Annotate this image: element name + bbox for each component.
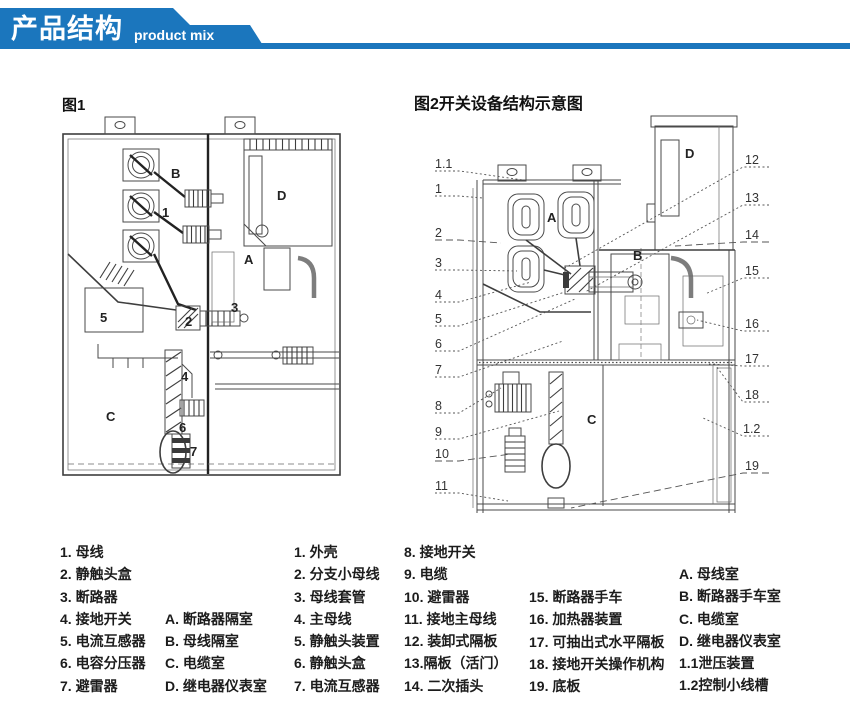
fig2-callout-14: 14 bbox=[745, 228, 759, 242]
legend-item: 4. 主母线 bbox=[294, 608, 380, 630]
legend-item: 15. 断路器手车 bbox=[529, 586, 664, 608]
fig2-callout-12: 12 bbox=[745, 153, 759, 167]
fig2-callout-10: 10 bbox=[435, 447, 449, 461]
fig2-callout-15: 15 bbox=[745, 264, 759, 278]
fig1-wall-bushings bbox=[183, 190, 223, 243]
legend-column-rooms: A. 母线室 B. 断路器手车室 C. 电缆室 D. 继电器仪表室 1.1泄压装… bbox=[679, 563, 781, 697]
legend-item-label: D. 继电器仪表室 bbox=[679, 630, 781, 652]
fig2-callout-19: 19 bbox=[745, 459, 759, 473]
legend-item: 7. 电流互感器 bbox=[294, 675, 380, 697]
legend-item: 1. 母线 bbox=[60, 541, 267, 563]
legend-item: D. 继电器仪表室 bbox=[679, 630, 781, 652]
legend-item: 1.1泄压装置 bbox=[679, 652, 781, 674]
legend-item-label: 6. 电容分压器 bbox=[60, 652, 165, 674]
legend-item: 3. 断路器 bbox=[60, 586, 267, 608]
legend-item: 1.2控制小线槽 bbox=[679, 674, 781, 696]
fig2-label-B: B bbox=[633, 248, 642, 263]
legend-item-label: C. 电缆室 bbox=[679, 608, 739, 630]
legend-item: 11. 接地主母线 bbox=[404, 608, 507, 630]
fig2-cabinet-outline bbox=[473, 165, 735, 513]
figure2-drawing: 1.1 1 2 3 4 5 6 7 8 9 10 11 12 13 14 15 … bbox=[413, 106, 813, 534]
legend-item-label: 15. 断路器手车 bbox=[529, 586, 622, 608]
fig1-label-A: A bbox=[244, 252, 254, 267]
legend-item-label: 7. 避雷器 bbox=[60, 675, 165, 697]
fig1-cabinet-outline bbox=[63, 117, 340, 475]
legend-item-label: 16. 加热器装置 bbox=[529, 608, 622, 630]
fig1-breaker-compartment bbox=[210, 248, 339, 389]
fig1-label-5: 5 bbox=[100, 310, 107, 325]
legend-item-label: A. 断路器隔室 bbox=[165, 608, 253, 630]
fig2-callout-1-1: 1.1 bbox=[435, 157, 452, 171]
legend-item-label: 5. 静触头装置 bbox=[294, 630, 380, 652]
legend-item-label: 4. 主母线 bbox=[294, 608, 352, 630]
fig2-label-D: D bbox=[685, 146, 694, 161]
fig2-callout-5: 5 bbox=[435, 312, 442, 326]
fig1-label-C: C bbox=[106, 409, 116, 424]
fig2-label-C: C bbox=[587, 412, 597, 427]
legend-item: 14. 二次插头 bbox=[404, 675, 507, 697]
legend-item: 16. 加热器装置 bbox=[529, 608, 664, 630]
fig2-callout-4: 4 bbox=[435, 288, 442, 302]
legend-item: 8. 接地开关 bbox=[404, 541, 507, 563]
fig1-label-3: 3 bbox=[231, 300, 238, 315]
legend-item: 10. 避雷器 bbox=[404, 586, 507, 608]
legend-column-fig2-b: 8. 接地开关 9. 电缆 10. 避雷器 11. 接地主母线 12. 装卸式隔… bbox=[404, 541, 507, 697]
page: 产品结构 product mix 图1 图2开关设备结构示意图 bbox=[0, 0, 850, 728]
legend-column-fig2-a: 1. 外壳 2. 分支小母线 3. 母线套管 4. 主母线 5. 静触头装置 6… bbox=[294, 541, 380, 697]
fig1-label-6: 6 bbox=[179, 420, 186, 435]
legend-item-label: 12. 装卸式隔板 bbox=[404, 630, 497, 652]
legend-item: A. 母线室 bbox=[679, 563, 781, 585]
fig1-label-4: 4 bbox=[181, 369, 189, 384]
legend-item-label: 13.隔板（活门） bbox=[404, 652, 507, 674]
legend-column-fig1: 1. 母线 2. 静触头盒 3. 断路器 4. 接地开关A. 断路器隔室 5. … bbox=[60, 541, 267, 697]
legend-item-label: 19. 底板 bbox=[529, 675, 580, 697]
fig2-relay-compartment bbox=[599, 116, 737, 250]
legend-item: 6. 静触头盒 bbox=[294, 652, 380, 674]
legend-item-label: 18. 接地开关操作机构 bbox=[529, 653, 664, 675]
fig2-callout-8: 8 bbox=[435, 399, 442, 413]
legend-item-label: 17. 可抽出式水平隔板 bbox=[529, 631, 664, 653]
legend-item-label: 10. 避雷器 bbox=[404, 586, 469, 608]
legend-item-label: B. 断路器手车室 bbox=[679, 585, 781, 607]
legend-item-label: 1. 母线 bbox=[60, 541, 165, 563]
legend-item: 7. 避雷器D. 继电器仪表室 bbox=[60, 675, 267, 697]
legend-item-label: 2. 静触头盒 bbox=[60, 563, 165, 585]
fig1-label-2: 2 bbox=[185, 314, 192, 329]
legend-item: 18. 接地开关操作机构 bbox=[529, 653, 664, 675]
legend-item-label: 4. 接地开关 bbox=[60, 608, 165, 630]
fig1-label-7: 7 bbox=[190, 444, 197, 459]
legend-item: 13.隔板（活门） bbox=[404, 652, 507, 674]
legend-item: 5. 静触头装置 bbox=[294, 630, 380, 652]
legend-item: 1. 外壳 bbox=[294, 541, 380, 563]
fig1-label-D: D bbox=[277, 188, 286, 203]
legend-item-label: 3. 母线套管 bbox=[294, 586, 366, 608]
fig2-callout-9: 9 bbox=[435, 425, 442, 439]
fig2-callout-13: 13 bbox=[745, 191, 759, 205]
legend-item-label: 9. 电缆 bbox=[404, 563, 448, 585]
legend-item: 5. 电流互感器B. 母线隔室 bbox=[60, 630, 267, 652]
legend-item-label: B. 母线隔室 bbox=[165, 630, 239, 652]
fig1-label-B: B bbox=[171, 166, 180, 181]
fig2-callout-1-2: 1.2 bbox=[743, 422, 760, 436]
fig2-busbar-compartment bbox=[483, 192, 642, 312]
legend-item-label: C. 电缆室 bbox=[165, 652, 225, 674]
legend-item-label: 6. 静触头盒 bbox=[294, 652, 366, 674]
fig2-cable-compartment bbox=[486, 365, 731, 508]
section-banner: 产品结构 product mix bbox=[0, 8, 264, 47]
legend-item: 6. 电容分压器C. 电缆室 bbox=[60, 652, 267, 674]
fig1-busbar-bushings bbox=[100, 149, 196, 310]
legend-item: C. 电缆室 bbox=[679, 608, 781, 630]
legend-item-label: 2. 分支小母线 bbox=[294, 563, 380, 585]
fig2-room-labels: A B C D bbox=[547, 146, 694, 427]
fig2-callout-2: 2 bbox=[435, 226, 442, 240]
legend-item-label: 1.2控制小线槽 bbox=[679, 674, 768, 696]
legend-item: 3. 母线套管 bbox=[294, 586, 380, 608]
legend-item-label: 1. 外壳 bbox=[294, 541, 338, 563]
fig2-callout-16: 16 bbox=[745, 317, 759, 331]
legend-item: 9. 电缆 bbox=[404, 563, 507, 585]
legend-item: 2. 静触头盒 bbox=[60, 563, 267, 585]
fig2-callout-17: 17 bbox=[745, 352, 759, 366]
legend-item-label: A. 母线室 bbox=[679, 563, 739, 585]
legend-item-label: 14. 二次插头 bbox=[404, 675, 483, 697]
legend-item: B. 断路器手车室 bbox=[679, 585, 781, 607]
fig2-callout-18: 18 bbox=[745, 388, 759, 402]
legend-item-label: D. 继电器仪表室 bbox=[165, 675, 267, 697]
legend-item: 19. 底板 bbox=[529, 675, 664, 697]
legend-item-label: 3. 断路器 bbox=[60, 586, 165, 608]
fig2-breaker-compartment bbox=[611, 248, 723, 360]
fig2-callout-11: 11 bbox=[435, 479, 448, 493]
fig1-relay-compartment bbox=[244, 139, 332, 246]
fig2-callout-3: 3 bbox=[435, 256, 442, 270]
section-title: 产品结构 bbox=[11, 7, 123, 46]
legend-item: 2. 分支小母线 bbox=[294, 563, 380, 585]
fig2-callout-7: 7 bbox=[435, 363, 442, 377]
legend-item-label: 5. 电流互感器 bbox=[60, 630, 165, 652]
figure1-drawing: B 1 D A 3 2 5 4 C 6 7 bbox=[58, 112, 350, 484]
fig2-label-A: A bbox=[547, 210, 557, 225]
section-subtitle: product mix bbox=[134, 27, 214, 43]
legend-column-fig2-c: 15. 断路器手车 16. 加热器装置 17. 可抽出式水平隔板 18. 接地开… bbox=[529, 586, 664, 697]
fig2-callout-1: 1 bbox=[435, 182, 442, 196]
legend-item-label: 8. 接地开关 bbox=[404, 541, 476, 563]
fig2-callout-6: 6 bbox=[435, 337, 442, 351]
legend-item: 17. 可抽出式水平隔板 bbox=[529, 631, 664, 653]
legend-item: 4. 接地开关A. 断路器隔室 bbox=[60, 608, 267, 630]
legend-item: 12. 装卸式隔板 bbox=[404, 630, 507, 652]
legend-item-label: 7. 电流互感器 bbox=[294, 675, 380, 697]
legend-item-label: 11. 接地主母线 bbox=[404, 608, 497, 630]
fig1-label-1: 1 bbox=[162, 205, 169, 220]
legend-item-label: 1.1泄压装置 bbox=[679, 652, 754, 674]
